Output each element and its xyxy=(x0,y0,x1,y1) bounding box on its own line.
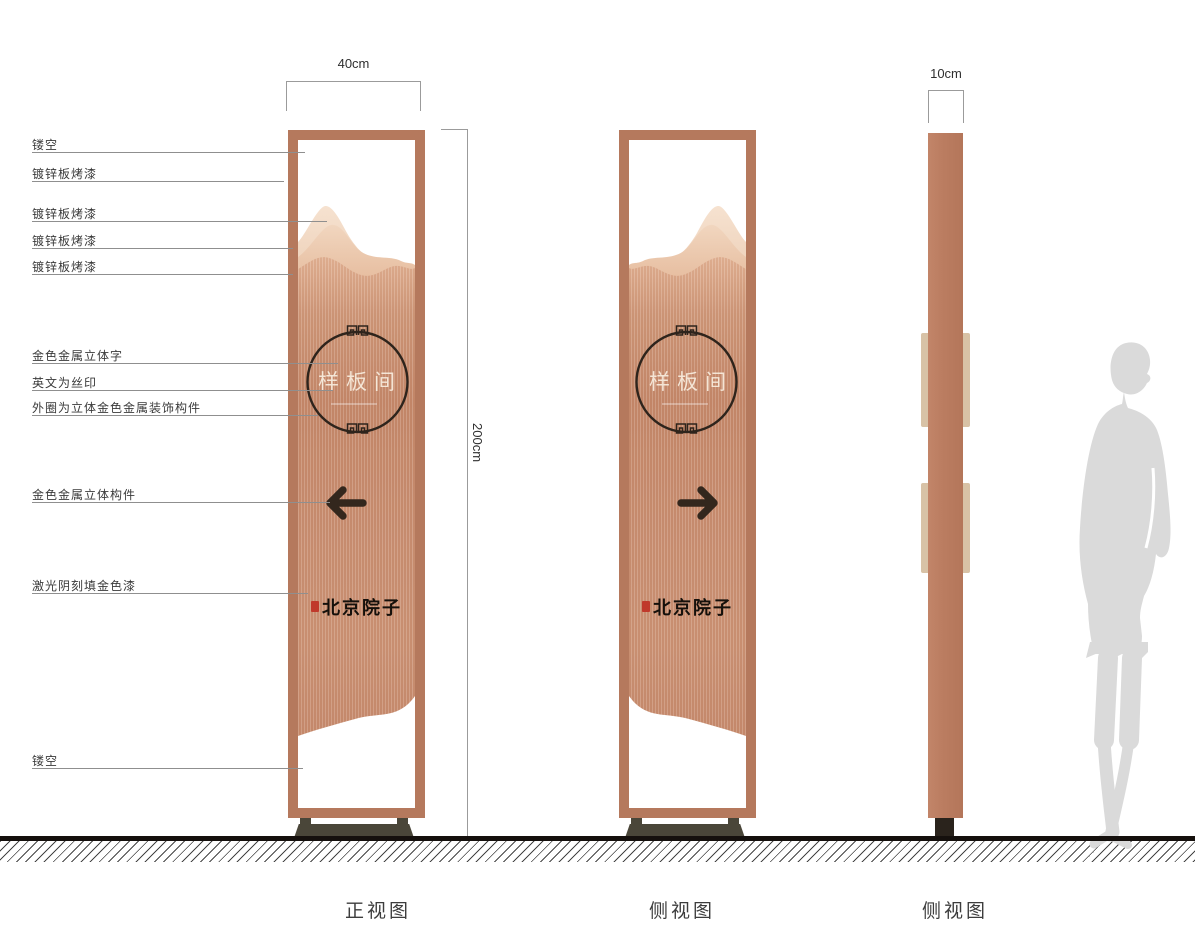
callout-galvanized-1: 镀锌板烤漆 xyxy=(32,165,97,182)
callout-silkscreen: 英文为丝印 xyxy=(32,374,97,391)
callout-laser-engraving: 激光阴刻填金色漆 xyxy=(32,577,136,594)
callout-leader-line xyxy=(32,390,333,391)
room-name-plate: 样板间 xyxy=(619,366,756,396)
height-dimension-line xyxy=(467,129,468,837)
callout-galvanized-3: 镀锌板烤漆 xyxy=(32,232,97,249)
callout-leader-line xyxy=(32,181,284,182)
callout-leader-line xyxy=(32,593,308,594)
callout-gold-letters: 金色金属立体字 xyxy=(32,347,123,364)
callout-gold-component: 金色金属立体构件 xyxy=(32,486,136,503)
callout-galvanized-4: 镀锌板烤漆 xyxy=(32,258,97,275)
callout-hollow-bottom: 镂空 xyxy=(32,752,58,769)
sign-panel-artwork xyxy=(298,140,415,808)
spec-drawing-canvas: 镂空 镀锌板烤漆 镀锌板烤漆 镀锌板烤漆 镀锌板烤漆 金色金属立体字 英文为丝印… xyxy=(0,0,1195,927)
front-view-sign xyxy=(288,130,425,818)
dimension-tick xyxy=(928,90,929,123)
seal-stamp-icon xyxy=(642,601,650,612)
callout-leader-line xyxy=(32,248,293,249)
callout-leader-line xyxy=(32,221,327,222)
room-name-plate: 样板间 xyxy=(288,366,425,396)
callout-ring-ornament: 外圈为立体金色金属装饰构件 xyxy=(32,399,201,416)
width-dimension-line xyxy=(286,81,421,82)
callout-galvanized-2: 镀锌板烤漆 xyxy=(32,205,97,222)
human-silhouette xyxy=(1036,336,1186,852)
side-profile-panel xyxy=(928,133,963,818)
dimension-tick xyxy=(963,90,964,123)
height-dimension-label: 200cm xyxy=(469,423,485,462)
width-dimension-label: 40cm xyxy=(286,56,421,71)
dimension-tick xyxy=(286,81,287,111)
brand-calligraphy-text: 北京院子 xyxy=(653,598,733,619)
brand-calligraphy: 北京院子 xyxy=(288,594,425,620)
depth-dimension-line xyxy=(928,90,964,91)
callout-leader-line xyxy=(32,415,318,416)
brand-calligraphy: 北京院子 xyxy=(619,594,756,620)
silkscreen-english-text xyxy=(331,403,377,405)
silkscreen-english-text xyxy=(662,403,708,405)
depth-dimension-label: 10cm xyxy=(927,66,965,81)
sign-panel-artwork xyxy=(629,140,746,808)
callout-leader-line xyxy=(32,363,338,364)
ground-line xyxy=(0,836,1195,841)
view-caption-side-2: 侧视图 xyxy=(895,896,1015,923)
seal-stamp-icon xyxy=(311,601,319,612)
ground-hatch xyxy=(0,841,1195,862)
callout-leader-line xyxy=(32,152,305,153)
dimension-tick xyxy=(441,129,467,130)
callout-hollow-top: 镂空 xyxy=(32,136,58,153)
side-view-sign xyxy=(619,130,756,818)
callout-leader-line xyxy=(32,274,293,275)
brand-calligraphy-text: 北京院子 xyxy=(322,598,402,619)
callout-leader-line xyxy=(32,502,330,503)
view-caption-side-1: 侧视图 xyxy=(622,896,742,923)
dimension-tick xyxy=(420,81,421,111)
view-caption-front: 正视图 xyxy=(318,896,438,923)
callout-leader-line xyxy=(32,768,303,769)
